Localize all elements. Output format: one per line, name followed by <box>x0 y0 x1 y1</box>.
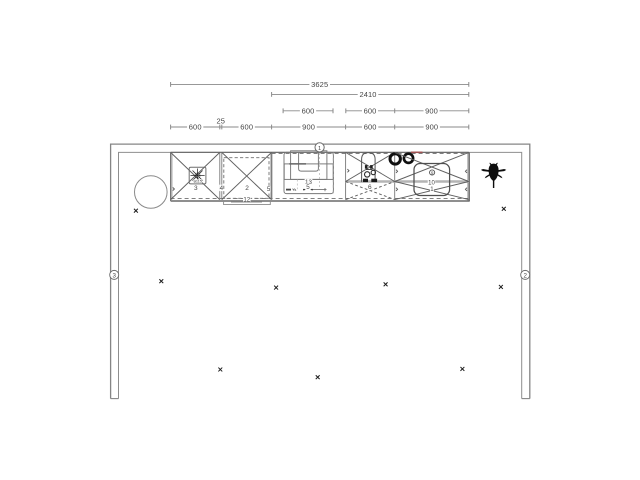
svg-text:10: 10 <box>428 181 435 187</box>
svg-text:2: 2 <box>245 185 249 192</box>
svg-text:3625: 3625 <box>311 80 328 89</box>
svg-text:900: 900 <box>425 123 438 132</box>
svg-text:1: 1 <box>318 146 321 152</box>
svg-text:2410: 2410 <box>359 90 376 99</box>
svg-text:600: 600 <box>364 123 377 132</box>
svg-text:9: 9 <box>431 170 434 175</box>
svg-text:900: 900 <box>302 123 315 132</box>
svg-text:5: 5 <box>306 184 310 191</box>
svg-text:⌀115: ⌀115 <box>194 179 202 183</box>
svg-text:600: 600 <box>364 106 377 115</box>
svg-text:600: 600 <box>189 123 202 132</box>
svg-text:600: 600 <box>240 123 253 132</box>
svg-text:3: 3 <box>112 272 116 279</box>
svg-text:4: 4 <box>220 185 224 192</box>
svg-text:900: 900 <box>425 106 438 115</box>
svg-text:2: 2 <box>523 272 527 279</box>
svg-text:25: 25 <box>217 116 226 125</box>
svg-text:600: 600 <box>302 106 315 115</box>
svg-text:5: 5 <box>267 186 271 193</box>
svg-text:6: 6 <box>368 184 372 191</box>
svg-text:3: 3 <box>194 185 198 192</box>
